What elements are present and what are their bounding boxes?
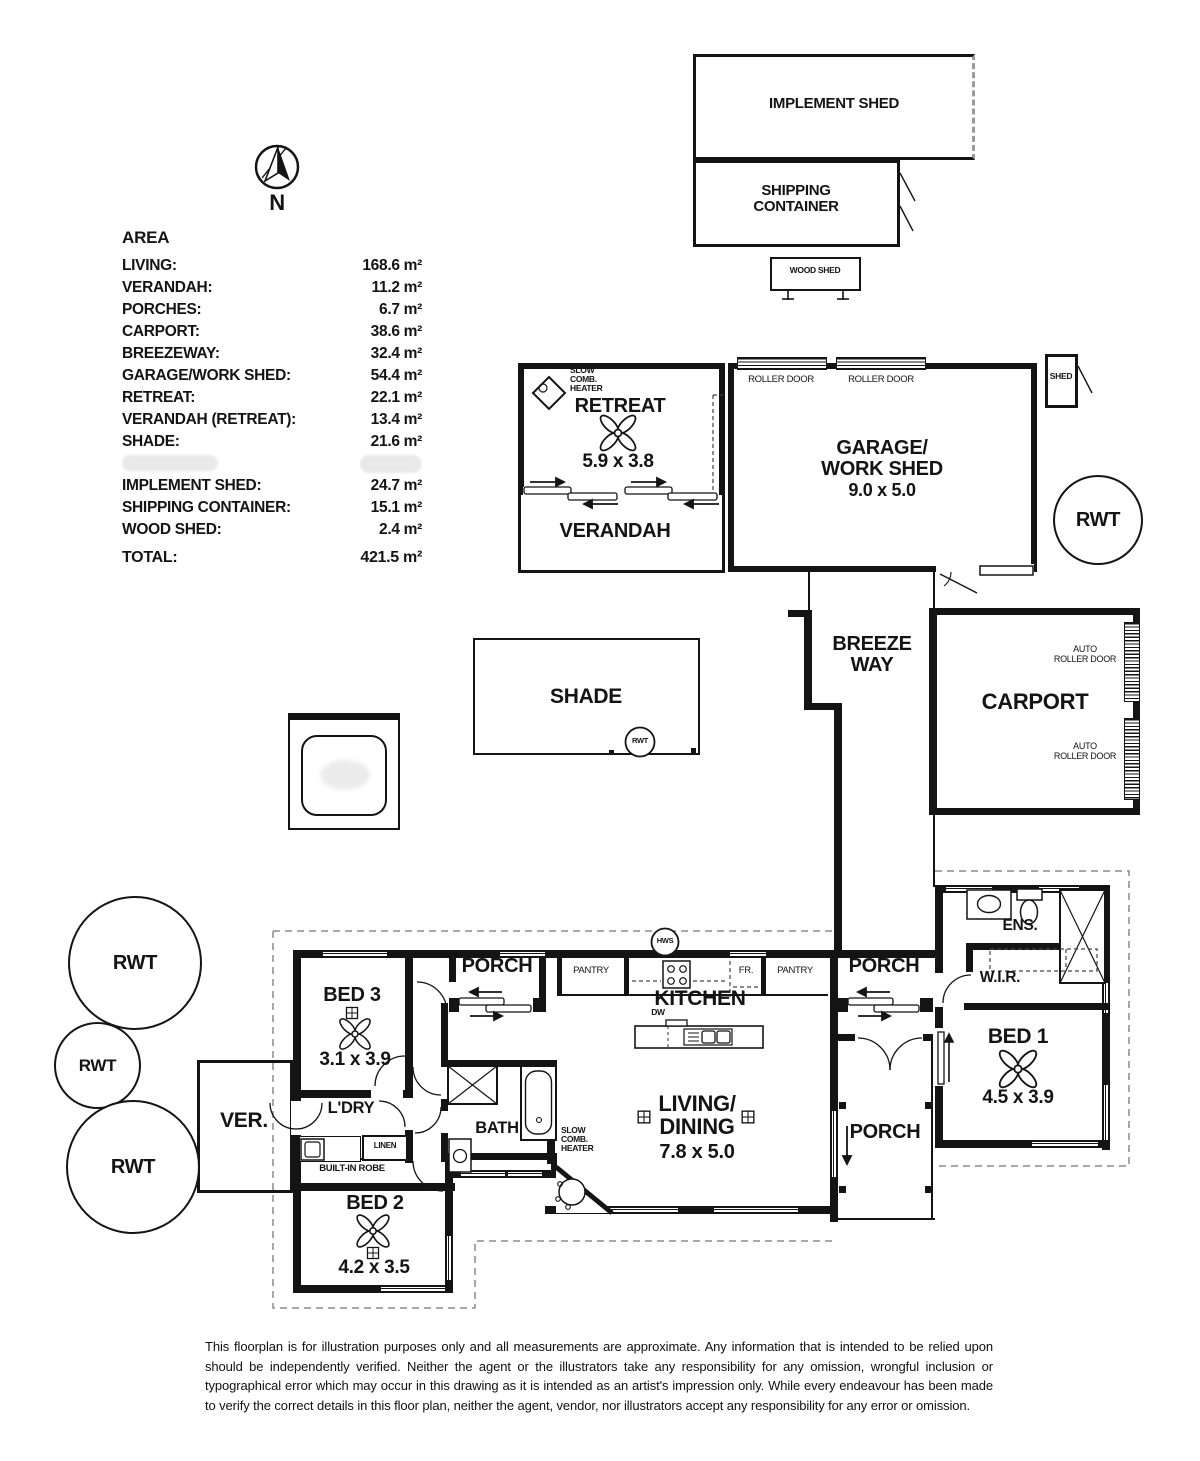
legend-row: SHIPPING CONTAINER:15.1 m² [122,499,422,521]
legend-label: PORCHES: [122,301,201,319]
carport-wall [929,608,937,815]
shade-post [691,748,696,753]
vanity-icon [967,890,1011,919]
shade-label: SHADE [550,686,622,708]
dishwasher-label: DW [651,1008,665,1017]
legend-label: GARAGE/WORK SHED: [122,367,291,385]
wir-door-opening [933,973,945,1007]
ceiling-fan-icon [355,1213,392,1250]
window [730,951,766,957]
bed3-wall-right [405,950,413,1097]
container-door-marks [900,173,915,231]
legend-value: 6.7 m² [379,301,422,319]
cooktop-icon [663,961,690,988]
legend-row: WOOD SHED:2.4 m² [122,521,422,543]
rwt-tank: RWT [1053,475,1143,565]
shed-door [1078,366,1092,393]
porch-bottom-right-label: PORCH [850,1122,921,1143]
window [831,1111,837,1177]
legend-row: VERANDAH:11.2 m² [122,279,422,301]
window [592,1207,678,1213]
ens-wir-wall [966,943,1110,950]
legend-row: IMPLEMENT SHED:24.7 m² [122,477,422,499]
disclaimer-text: This floorplan is for illustration purpo… [205,1337,993,1415]
redacted-pool-mark [320,760,370,790]
breezeway-line [933,570,935,612]
carport-wall [933,608,1140,615]
retreat-slider-opening [523,487,719,499]
rwt-tank: RWT [66,1100,200,1234]
legend-row-redacted [122,455,422,477]
legend-label: LIVING: [122,257,177,275]
bed1-dims: 4.5 x 3.9 [982,1088,1053,1108]
bed2-label: BED 2 [346,1193,403,1214]
ceiling-fan-icon [337,1016,372,1051]
legend-row: RETREAT:22.1 m² [122,389,422,411]
shower-icon [1060,890,1105,983]
window [461,1171,505,1177]
french-door-opening [855,1034,923,1041]
compass-north-label: N [269,191,285,214]
right-block-wall-left [935,885,943,1148]
shed-outline [1045,354,1078,408]
hall-wall [441,1003,448,1063]
legend-row: PORCHES:6.7 m² [122,301,422,323]
garage-dims: 9.0 x 5.0 [848,481,915,500]
bench-divider [557,958,562,996]
redacted-text [122,455,218,471]
ens-label: ENS. [1003,918,1038,934]
wood-shed-doors [782,291,849,300]
bed3-label: BED 3 [323,985,380,1006]
bed1-door-opening [933,1028,945,1086]
pantry-label: PANTRY [777,966,813,976]
ceiling-fan-icon [997,1048,1039,1090]
window [1039,886,1079,892]
wir-label: W.I.R. [980,970,1020,986]
compass-icon [256,146,298,188]
rwt-tank: RWT [54,1022,141,1109]
breezeway-label: BREEZE WAY [832,634,911,676]
breezeway-wall [834,703,842,952]
shed-label: SHED [1050,372,1072,381]
retreat-outline [518,363,725,498]
legend-total-label: TOTAL: [122,549,177,567]
legend-label: BREEZEWAY: [122,345,220,363]
legend-label: IMPLEMENT SHED: [122,477,261,495]
window [1103,1085,1109,1141]
roller-door-left [737,357,827,370]
legend-label: SHADE: [122,433,180,451]
vent-grid-icon [638,1111,650,1123]
auto-roller-door-bottom [1124,718,1140,800]
breezeway-line [808,572,810,612]
bath-label: BATH [475,1120,518,1137]
roller-door-label: ROLLER DOOR [848,375,914,385]
legend-row: VERANDAH (RETREAT):13.4 m² [122,411,422,433]
breezeway-wall [804,610,812,710]
living-heater-label: SLOW COMB. HEATER [561,1126,594,1153]
laundry-label: L'DRY [328,1100,375,1117]
rwt-tank: RWT [68,896,202,1030]
dishwasher-icon [666,1020,687,1026]
breezeway-line [933,815,935,887]
area-legend: AREA LIVING:168.6 m² VERANDAH:11.2 m² PO… [122,228,422,571]
sink-icon [684,1029,732,1045]
retreat-heater-label: SLOW COMB. HEATER [570,366,603,393]
porch-wall [449,998,459,1012]
window [508,1171,542,1177]
garage-label: GARAGE/ WORK SHED [821,438,943,480]
porch-top-right-label: PORCH [849,956,920,977]
legend-label: WOOD SHED: [122,521,221,539]
shade-post [609,750,614,755]
legend-row: SHADE:21.6 m² [122,433,422,455]
legend-value: 15.1 m² [371,499,422,517]
carport-wall [933,808,1140,815]
living-label: LIVING/ DINING [658,1092,735,1139]
porch-edge [838,1218,935,1220]
window [714,1207,798,1213]
slow-comb-heater-icon [559,1179,585,1205]
shipping-container-label: SHIPPING CONTAINER [753,183,838,215]
roller-door-label: ROLLER DOOR [748,375,814,385]
legend-value: 24.7 m² [371,477,422,495]
legend-value: 32.4 m² [371,345,422,363]
living-dims: 7.8 x 5.0 [659,1142,734,1163]
island-bench [635,1026,763,1048]
porch-wall [533,998,546,1012]
linen-label: LINEN [374,1142,397,1150]
legend-value: 21.6 m² [371,433,422,451]
garage-door-opening [936,564,1034,573]
legend-value: 13.4 m² [371,411,422,429]
fridge-label: FR. [739,966,753,976]
alcove-wall [447,1160,453,1172]
legend-label: RETREAT: [122,389,195,407]
shower-icon [448,1066,497,1104]
porch-post [839,1186,846,1193]
shade-rwt-label: RWT [632,737,648,745]
redacted-value [360,455,422,473]
ver-door-opening [291,1101,303,1135]
living-wall-right [830,950,838,1222]
living-wall-left [547,1060,555,1164]
legend-title: AREA [122,228,422,248]
porch-wall [920,998,933,1012]
bath-wall-bottom [441,1153,557,1160]
bed3-door-opening [371,1090,403,1098]
retreat-dims: 5.9 x 3.8 [582,452,653,472]
porch-left-label: PORCH [462,956,533,977]
house-wall-top [293,950,935,958]
legend-value: 54.4 m² [371,367,422,385]
bed2-wall-top [293,1183,455,1191]
legend-label: SHIPPING CONTAINER: [122,499,291,517]
window-grid-icon [346,1007,357,1018]
porch-wall [838,998,848,1012]
legend-total-value: 421.5 m² [360,549,422,567]
window [446,1236,452,1280]
wardrobe-dashed [990,949,1097,971]
porch-post [839,1102,846,1109]
laundry-bench [299,1136,361,1162]
window [946,886,992,892]
porch-wall [449,958,456,982]
window [1032,1141,1098,1147]
ens-wir-wall-stub [966,943,973,972]
floorplan-page: AREA LIVING:168.6 m² VERANDAH:11.2 m² PO… [0,0,1200,1461]
legend-row: CARPORT:38.6 m² [122,323,422,345]
bed1-label: BED 1 [988,1026,1048,1048]
legend-row: BREEZEWAY:32.4 m² [122,345,422,367]
bench-divider [761,958,766,996]
kitchen-label: KITCHEN [654,988,745,1010]
bed3-dims: 3.1 x 3.9 [319,1050,390,1070]
roller-door-right [836,357,926,370]
retreat-verandah-label: VERANDAH [560,521,671,542]
legend-value: 38.6 m² [371,323,422,341]
robe-label: BUILT-IN ROBE [319,1164,385,1174]
auto-roller-door-label: AUTO ROLLER DOOR [1054,742,1116,761]
legend-row: LIVING:168.6 m² [122,257,422,279]
legend-label: CARPORT: [122,323,200,341]
wood-shed-label: WOOD SHED [790,266,841,275]
vent-grid-icon [742,1111,754,1123]
legend-label: VERANDAH (RETREAT): [122,411,296,429]
implement-shed-label: IMPLEMENT SHED [769,96,899,112]
legend-total-row: TOTAL:421.5 m² [122,549,422,571]
window [323,951,387,957]
ver-label: VER. [220,1110,268,1132]
carport-label: CARPORT [982,690,1089,713]
pantry-label: PANTRY [573,966,609,976]
auto-roller-door-top [1124,622,1140,702]
wir-bed1-wall [964,1003,1110,1010]
hall-wall [441,1099,448,1111]
bath-wall-top [441,1060,557,1067]
legend-value: 11.2 m² [372,279,422,297]
bed2-dims: 4.2 x 3.5 [338,1258,409,1278]
bench-divider [624,958,629,996]
window [381,1286,447,1292]
legend-value: 168.6 m² [362,257,422,275]
legend-value: 2.4 m² [379,521,422,539]
legend-value: 22.1 m² [371,389,422,407]
hws-label: HWS [657,937,674,945]
auto-roller-door-label: AUTO ROLLER DOOR [1054,645,1116,664]
retreat-label: RETREAT [575,396,666,417]
legend-row: GARAGE/WORK SHED:54.4 m² [122,367,422,389]
legend-label: VERANDAH: [122,279,212,297]
